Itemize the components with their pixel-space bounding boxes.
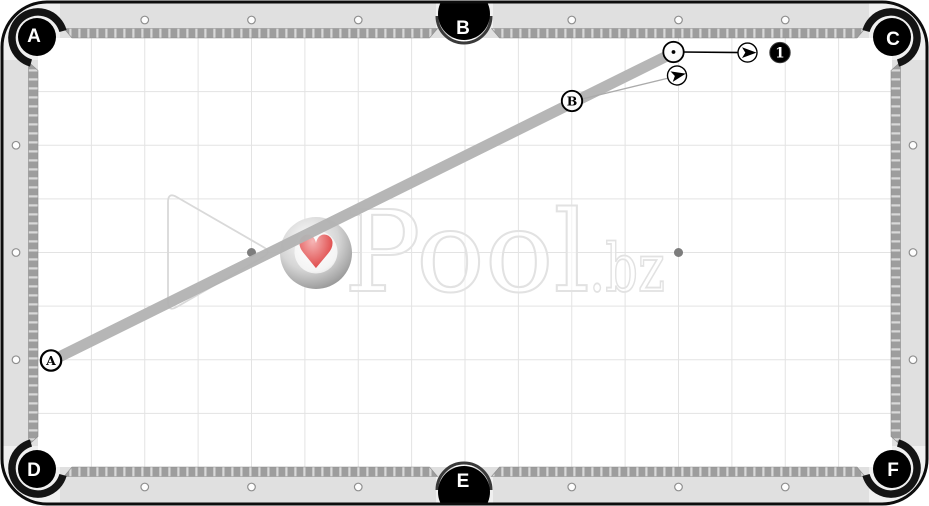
cue-ball-dot <box>672 50 676 54</box>
pocket-bottom-middle: E <box>437 463 491 506</box>
svg-text:C: C <box>886 29 900 50</box>
sight-dot <box>675 483 683 491</box>
pool-table-diagram: ♥ Pool .bz A B <box>0 0 929 506</box>
svg-text:A: A <box>45 353 56 368</box>
watermark-brand: Pool <box>344 188 590 318</box>
sight-dot <box>568 483 576 491</box>
sight-dot <box>568 16 576 24</box>
direction-marker[interactable] <box>738 43 757 62</box>
svg-text:F: F <box>887 460 899 481</box>
ball-1[interactable]: 1 <box>770 42 790 62</box>
sight-dot <box>781 16 789 24</box>
svg-text:1: 1 <box>775 46 784 62</box>
watermark-suffix: .bz <box>589 230 665 307</box>
svg-text:D: D <box>27 460 41 481</box>
sight-dot <box>248 16 256 24</box>
sight-dot <box>12 141 20 149</box>
table-frame: ♥ Pool .bz A B <box>0 0 929 506</box>
sight-dot <box>781 483 789 491</box>
sight-dot <box>909 141 917 149</box>
sight-dot <box>675 16 683 24</box>
ball-B[interactable]: B <box>562 91 582 111</box>
cue-arrow-line[interactable] <box>682 52 743 53</box>
sight-dot <box>354 16 362 24</box>
sight-dot <box>909 356 917 364</box>
sight-dot <box>12 249 20 257</box>
sight-dot <box>909 249 917 257</box>
pool-table: ♥ Pool .bz A B <box>0 0 929 506</box>
ball-A[interactable]: A <box>41 350 61 370</box>
svg-text:B: B <box>456 18 470 39</box>
svg-text:B: B <box>567 94 578 109</box>
svg-text:A: A <box>27 26 41 47</box>
sight-dot <box>354 483 362 491</box>
sight-dot <box>141 483 149 491</box>
sight-dot <box>248 483 256 491</box>
sight-dot <box>12 356 20 364</box>
sight-dot <box>141 16 149 24</box>
cue-ball[interactable] <box>663 42 683 62</box>
svg-text:E: E <box>457 471 470 492</box>
pocket-top-middle: B <box>437 0 491 43</box>
